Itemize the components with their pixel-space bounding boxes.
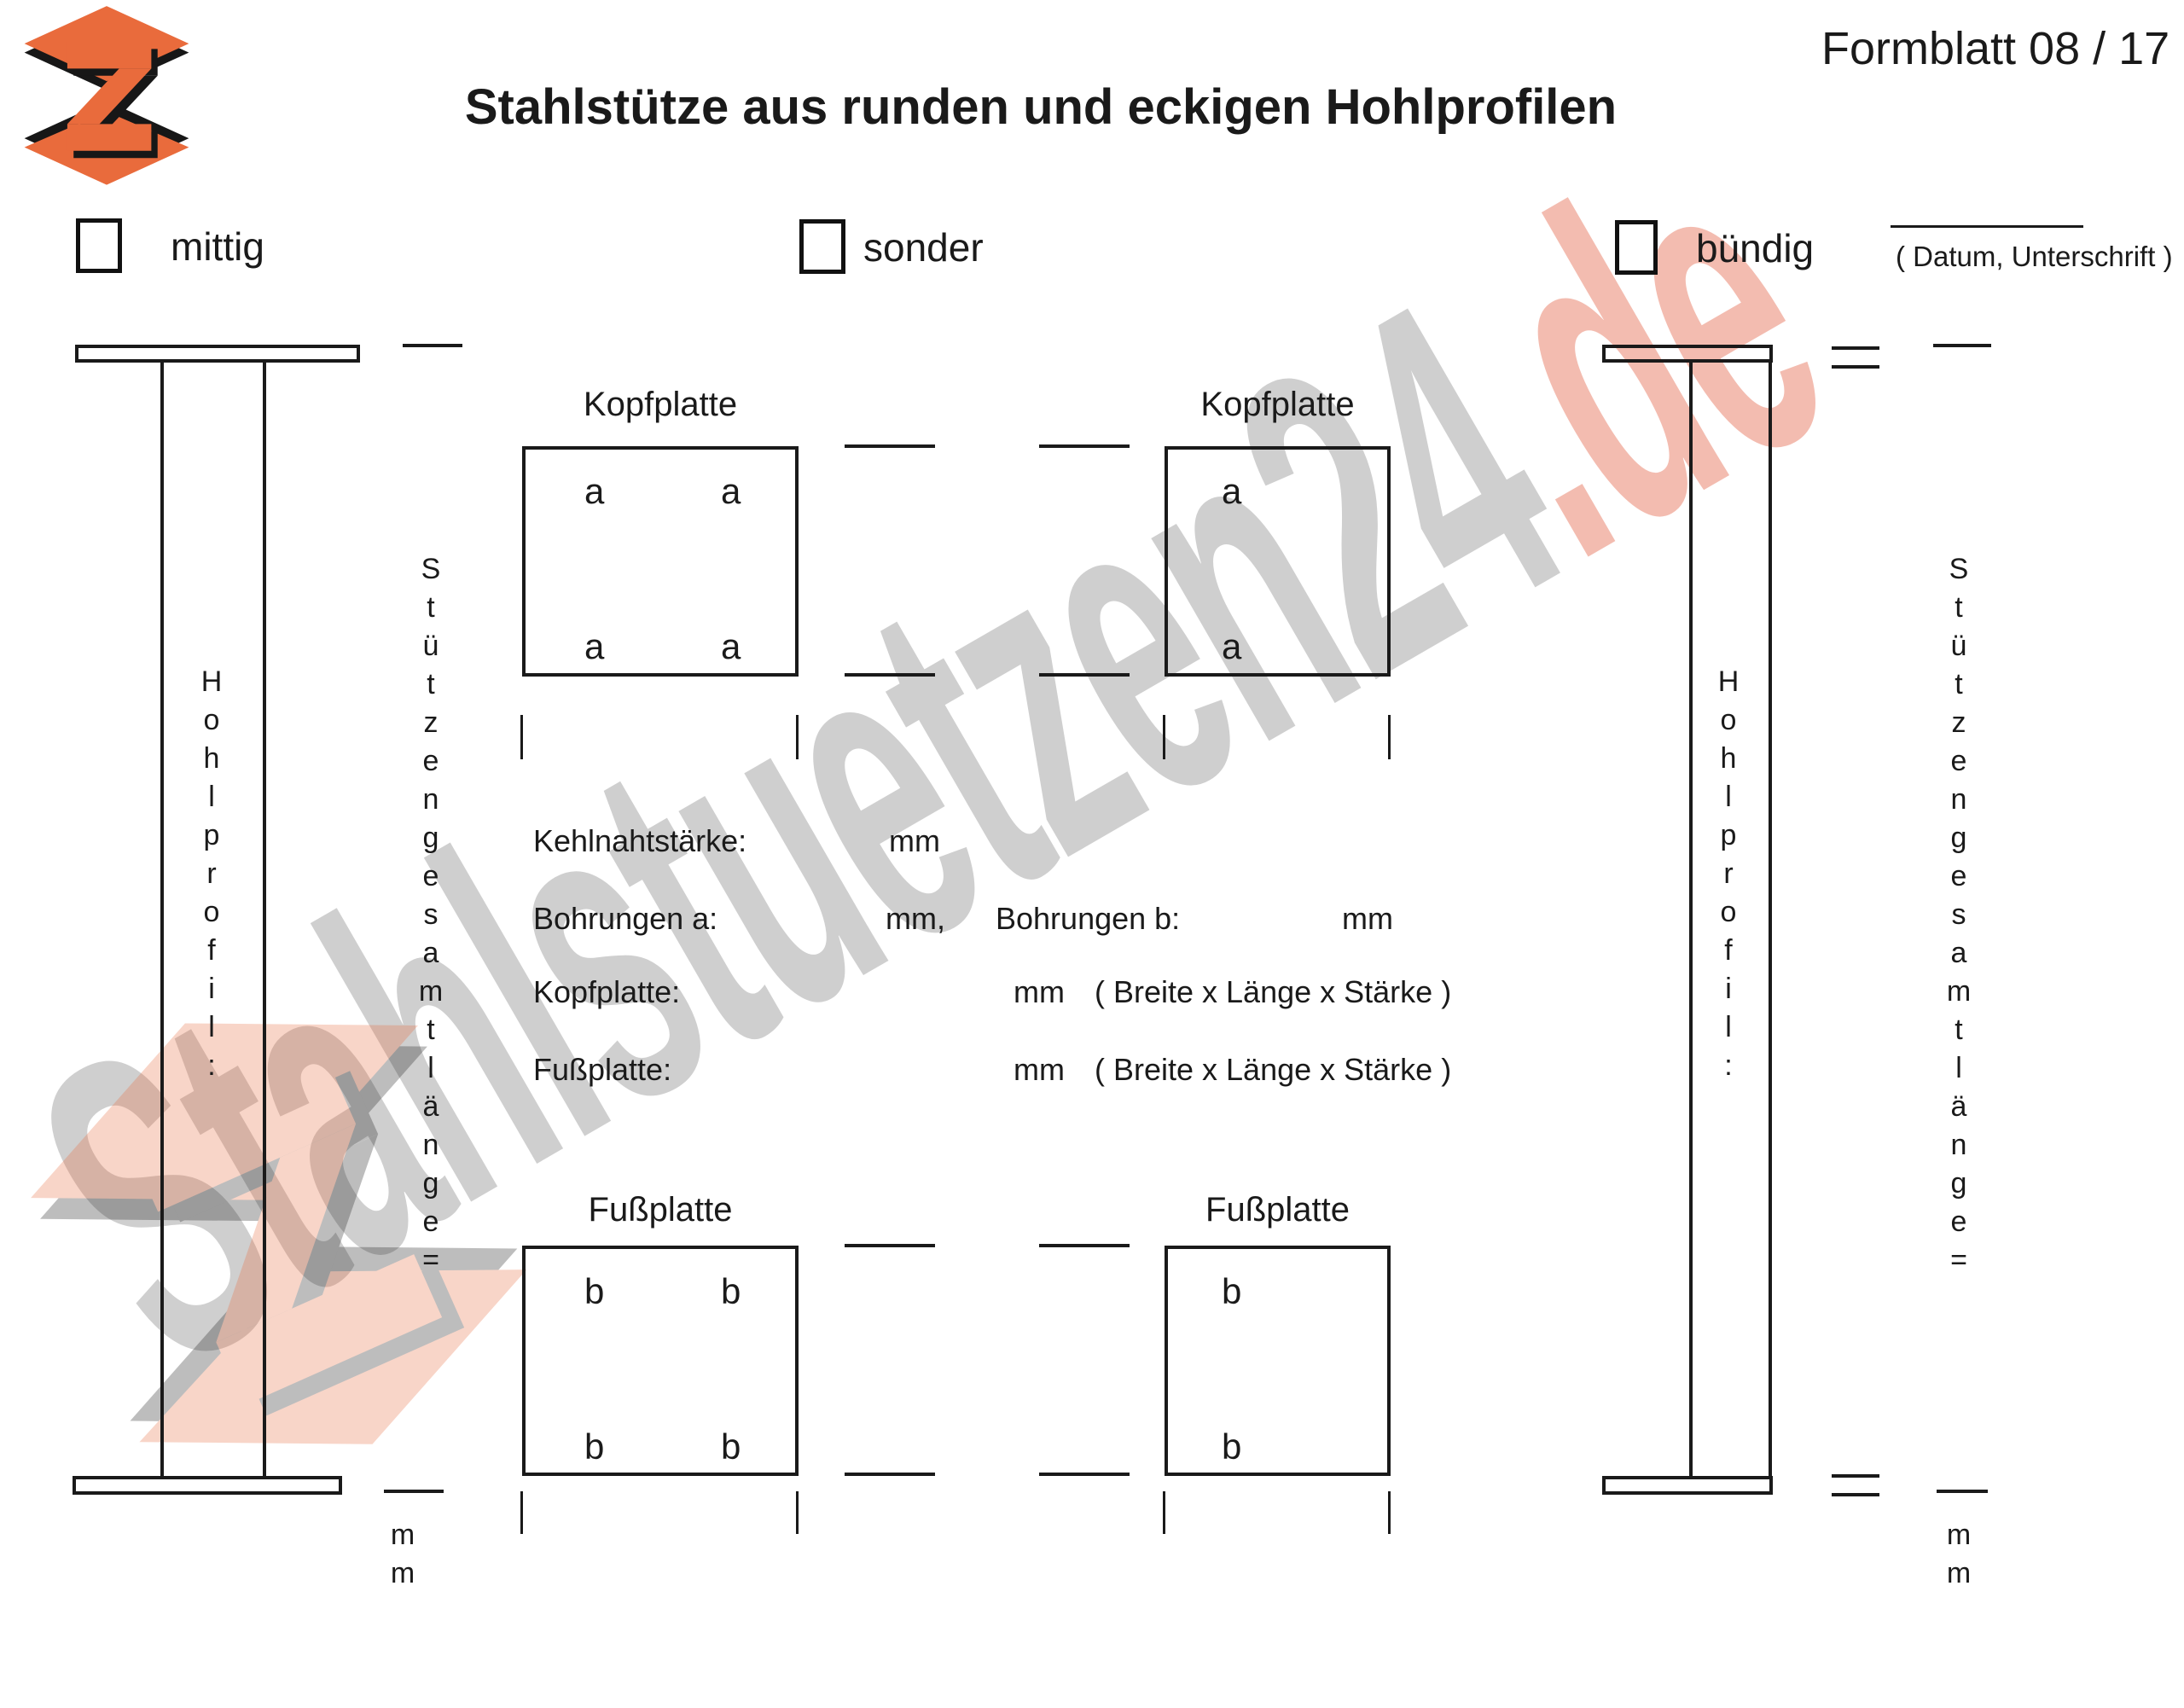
fussplatte-right-title: Fußplatte [1165, 1191, 1391, 1229]
kehlnaht-unit: mm [889, 823, 940, 859]
kopfplatte-right-tick-left [1163, 715, 1165, 759]
fussplatte-field-unit: mm [1014, 1052, 1065, 1088]
kopfplatte-length-field-line[interactable] [1039, 673, 1130, 677]
flush-mark-bottom [1832, 1493, 1879, 1496]
right-length-unit: mm [1933, 1324, 1984, 1708]
kopfplatte-left-tick-left [520, 715, 523, 759]
kopfplatte-right-tick-right [1388, 715, 1391, 759]
fussplatte-field-hint: ( Breite x Länge x Stärke ) [1095, 1052, 1451, 1088]
fussplatte-right-tick-right [1388, 1491, 1391, 1534]
signature-caption: ( Datum, Unterschrift ) [1896, 241, 2173, 273]
right-column-web-right [1769, 361, 1772, 1476]
hole-marker: b [1222, 1426, 1241, 1467]
left-length-dim-top-line [403, 344, 462, 347]
left-column-web-left [160, 361, 164, 1476]
checkbox-mittig-label: mittig [171, 224, 264, 270]
left-length-label: Stützengesamtlänge= [405, 358, 456, 1395]
fussplatte-length-field-line[interactable] [1039, 1473, 1130, 1476]
fussplatte-right-tick-left [1163, 1491, 1165, 1534]
hole-marker: b [721, 1426, 741, 1467]
right-length-dim-bottom-line [1937, 1490, 1988, 1493]
left-column-bottom-plate [73, 1476, 342, 1495]
left-column-profile-label: Hohlprofil: [186, 471, 237, 1200]
kopfplatte-left-box [522, 446, 799, 677]
checkbox-sonder[interactable] [799, 219, 845, 274]
hole-marker: a [721, 626, 741, 667]
checkbox-mittig[interactable] [76, 218, 122, 273]
bohrungen-b-label: Bohrungen b: [996, 901, 1180, 937]
right-column-profile-label: Hohlprofil: [1703, 471, 1754, 1200]
fussplatte-right-box [1165, 1246, 1391, 1476]
right-column-bottom-plate [1602, 1476, 1773, 1495]
fussplatte-left-tick-left [520, 1491, 523, 1534]
checkbox-buendig-label: bündig [1696, 225, 1814, 271]
right-column-web-left [1689, 361, 1693, 1476]
page-title: Stahlstütze aus runden und eckigen Hohlp… [392, 78, 1689, 136]
hole-marker: a [584, 471, 604, 512]
kopfplatte-field-hint: ( Breite x Länge x Stärke ) [1095, 974, 1451, 1010]
fussplatte-width-field-line[interactable] [845, 1244, 935, 1247]
fussplatte-width-field-line[interactable] [845, 1473, 935, 1476]
kopfplatte-field-unit: mm [1014, 974, 1065, 1010]
kopfplatte-width-field-line[interactable] [845, 444, 935, 448]
fussplatte-length-field-line[interactable] [1039, 1244, 1130, 1247]
hole-marker: b [1222, 1271, 1241, 1312]
kopfplatte-left-tick-right [796, 715, 799, 759]
bohrungen-a-label: Bohrungen a: [533, 901, 717, 937]
bohrungen-b-unit: mm [1342, 901, 1393, 937]
right-length-label: Stützengesamtlänge= [1933, 358, 1984, 1395]
fussplatte-left-tick-right [796, 1491, 799, 1534]
kopfplatte-length-field-line[interactable] [1039, 444, 1130, 448]
hole-marker: a [721, 471, 741, 512]
flush-mark-bottom [1832, 1474, 1879, 1478]
form-number: Formblatt 08 / 17 [1821, 22, 2169, 75]
left-column-web-right [263, 361, 266, 1476]
left-column-top-plate [75, 345, 360, 363]
checkbox-sonder-label: sonder [863, 224, 984, 270]
fussplatte-field-label: Fußplatte: [533, 1052, 671, 1088]
hole-marker: a [1222, 626, 1241, 667]
hole-marker: a [1222, 471, 1241, 512]
hole-marker: b [721, 1271, 741, 1312]
signature-line[interactable] [1891, 225, 2083, 228]
kopfplatte-left-title: Kopfplatte [522, 386, 799, 424]
hole-marker: b [584, 1271, 604, 1312]
kopfplatte-field-label: Kopfplatte: [533, 974, 680, 1010]
checkbox-buendig[interactable] [1615, 220, 1658, 275]
kopfplatte-right-box [1165, 446, 1391, 677]
left-length-dim-bottom-line [384, 1490, 444, 1493]
bohrungen-a-unit: mm, [886, 901, 945, 937]
hole-marker: a [584, 626, 604, 667]
fussplatte-left-title: Fußplatte [522, 1191, 799, 1229]
kopfplatte-right-title: Kopfplatte [1165, 386, 1391, 424]
hole-marker: b [584, 1426, 604, 1467]
fussplatte-left-box [522, 1246, 799, 1476]
flush-mark-top [1832, 365, 1879, 369]
right-length-dim-top-line [1933, 344, 1991, 347]
kopfplatte-width-field-line[interactable] [845, 673, 935, 677]
kehlnaht-label: Kehlnahtstärke: [533, 823, 746, 859]
company-logo-icon [17, 4, 196, 192]
flush-mark-top [1832, 346, 1879, 350]
left-length-unit: mm [377, 1324, 428, 1708]
right-column-top-plate [1602, 345, 1773, 363]
